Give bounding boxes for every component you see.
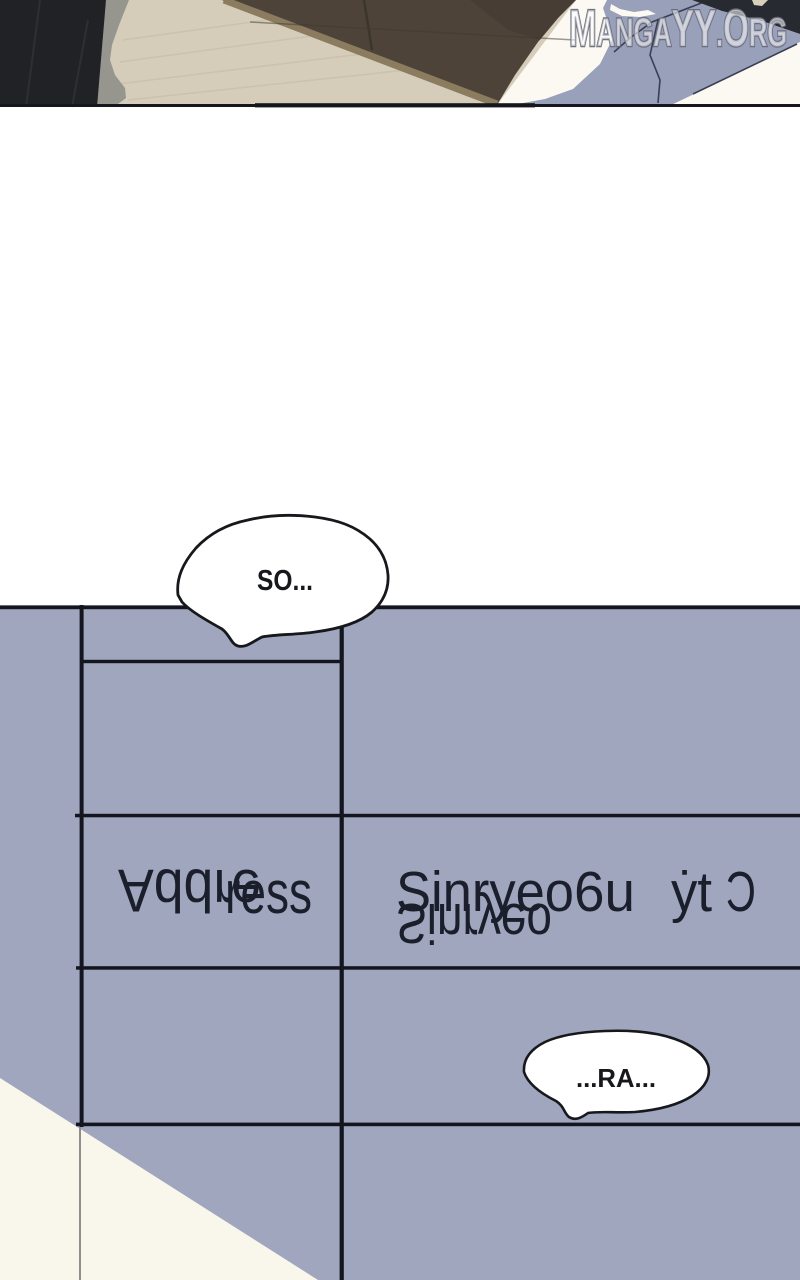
svg-text:6u: 6u xyxy=(574,860,635,924)
svg-text:Sinryeo: Sinryeo xyxy=(396,860,574,924)
svg-text:...RA...: ...RA... xyxy=(576,1063,656,1093)
svg-text:ress: ress xyxy=(225,859,312,926)
svg-text:ẏt: ẏt xyxy=(671,860,712,924)
svg-text:C: C xyxy=(726,860,756,924)
svg-text:SO...: SO... xyxy=(257,565,313,597)
